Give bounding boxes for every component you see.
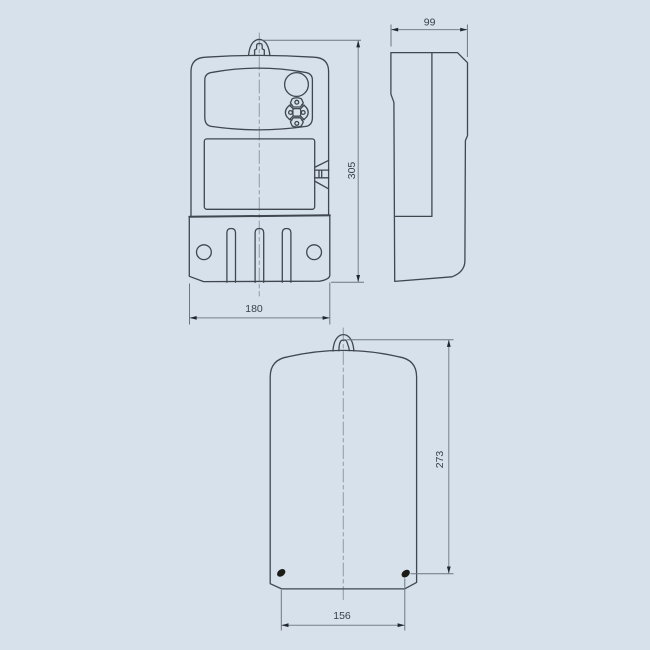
svg-text:273: 273 [434, 451, 446, 469]
svg-text:305: 305 [346, 162, 358, 180]
svg-text:156: 156 [333, 610, 351, 622]
svg-text:99: 99 [424, 16, 436, 28]
svg-text:180: 180 [245, 303, 263, 315]
